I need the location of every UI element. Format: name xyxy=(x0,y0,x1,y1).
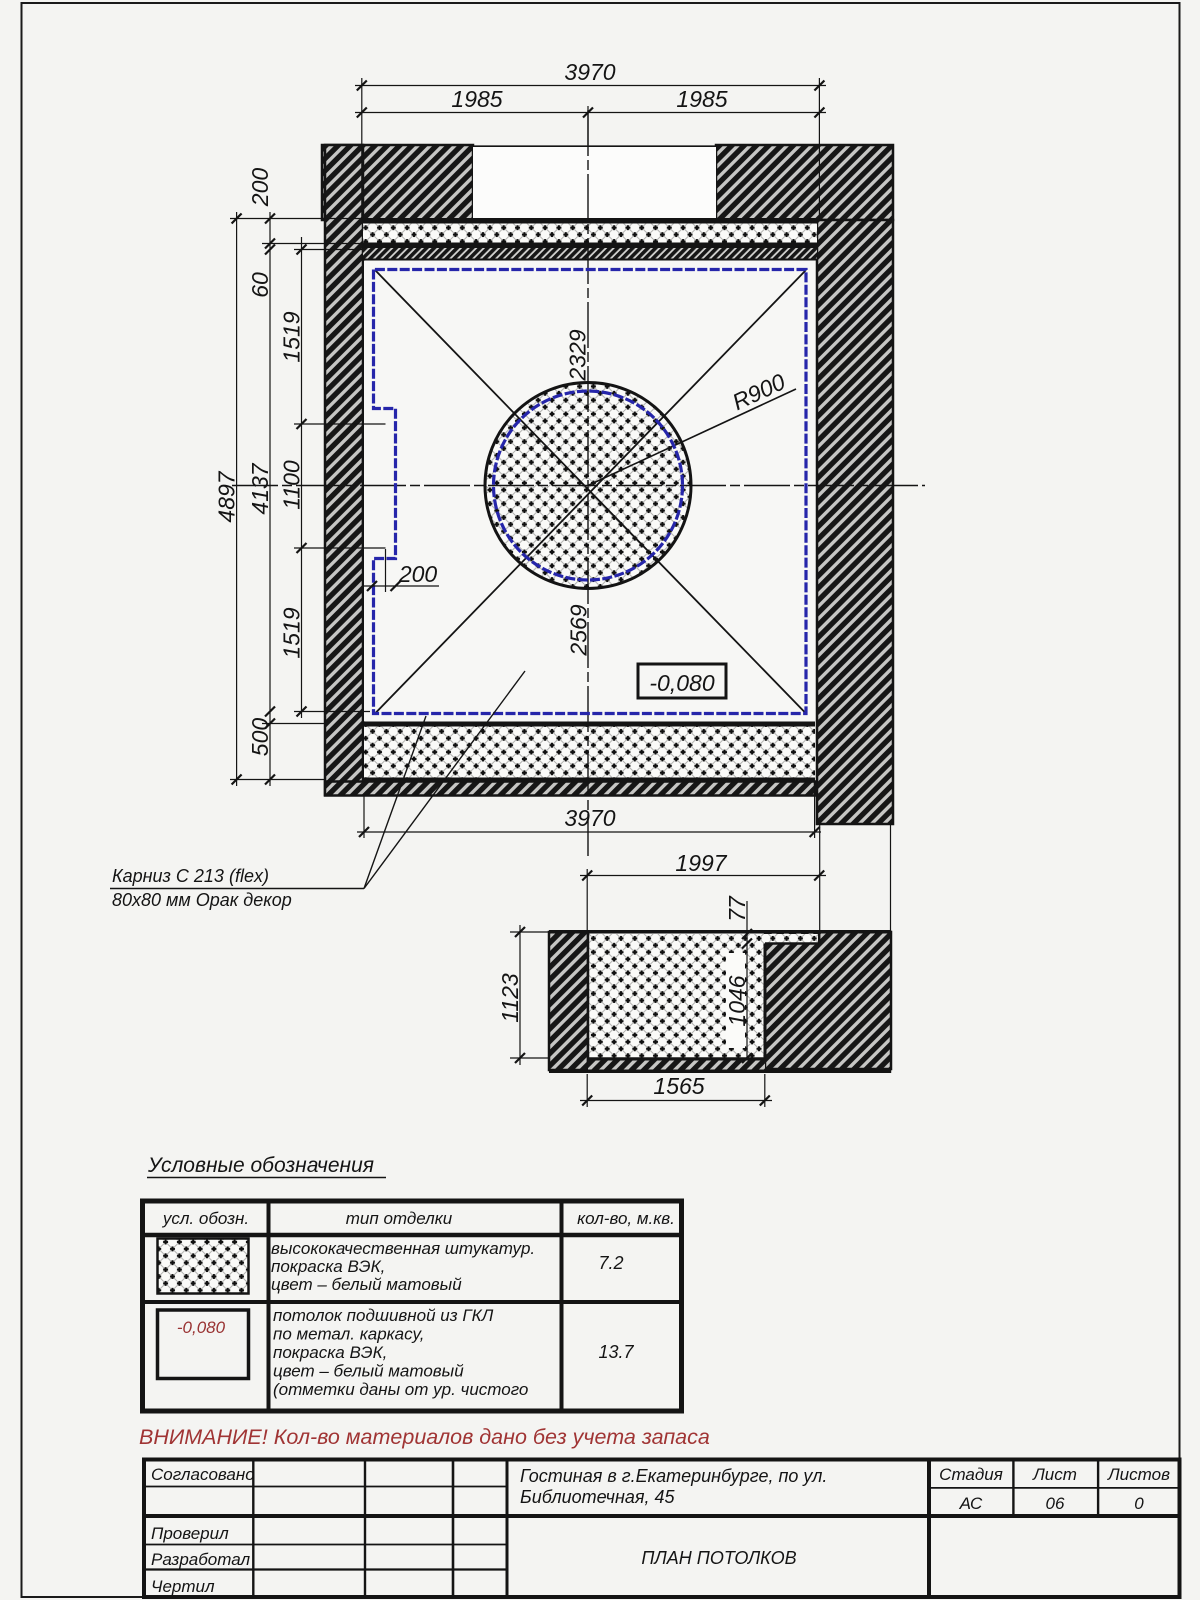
svg-text:покраска ВЭК,: покраска ВЭК, xyxy=(273,1343,387,1362)
svg-text:Гостиная в г.Екатеринбурге, по: Гостиная в г.Екатеринбурге, по ул. xyxy=(520,1466,827,1486)
svg-text:2329: 2329 xyxy=(565,329,591,381)
svg-text:по метал. каркасу,: по метал. каркасу, xyxy=(273,1325,425,1344)
svg-text:покраска ВЭК,: покраска ВЭК, xyxy=(271,1257,385,1276)
svg-text:1100: 1100 xyxy=(279,460,305,510)
svg-text:Чертил: Чертил xyxy=(151,1577,215,1596)
svg-text:АС: АС xyxy=(959,1494,983,1513)
svg-text:1565: 1565 xyxy=(653,1073,704,1099)
svg-text:1985: 1985 xyxy=(676,86,727,112)
svg-text:1519: 1519 xyxy=(279,607,305,658)
svg-text:Разработал: Разработал xyxy=(151,1550,250,1569)
svg-text:3970: 3970 xyxy=(564,59,615,85)
svg-text:ПЛАН ПОТОЛКОВ: ПЛАН ПОТОЛКОВ xyxy=(641,1548,796,1568)
svg-text:кол-во, м.кв.: кол-во, м.кв. xyxy=(577,1209,675,1228)
svg-text:потолок подшивной из ГКЛ: потолок подшивной из ГКЛ xyxy=(273,1306,494,1325)
svg-text:цвет – белый матовый: цвет – белый матовый xyxy=(273,1362,464,1381)
svg-text:4897: 4897 xyxy=(214,470,240,522)
svg-text:200: 200 xyxy=(247,168,273,208)
svg-text:2569: 2569 xyxy=(566,604,592,656)
svg-text:Условные обозначения: Условные обозначения xyxy=(147,1154,374,1177)
svg-text:Лист: Лист xyxy=(1032,1465,1077,1484)
svg-text:Стадия: Стадия xyxy=(939,1465,1003,1484)
svg-text:60: 60 xyxy=(247,272,273,298)
svg-text:4137: 4137 xyxy=(247,462,273,514)
svg-text:200: 200 xyxy=(398,561,438,587)
svg-text:06: 06 xyxy=(1046,1494,1065,1513)
svg-text:(отметки даны от ур. чистого: (отметки даны от ур. чистого xyxy=(273,1380,528,1399)
svg-text:1985: 1985 xyxy=(451,86,502,112)
svg-text:13.7: 13.7 xyxy=(598,1342,634,1362)
svg-text:Библиотечная, 45: Библиотечная, 45 xyxy=(520,1487,675,1507)
svg-text:Проверил: Проверил xyxy=(151,1524,229,1543)
svg-text:тип отделки: тип отделки xyxy=(346,1209,453,1228)
svg-text:0: 0 xyxy=(1134,1494,1144,1513)
svg-text:Согласовано: Согласовано xyxy=(151,1465,255,1484)
svg-text:77: 77 xyxy=(724,895,750,922)
svg-text:Карниз С 213 (flex): Карниз С 213 (flex) xyxy=(112,866,269,886)
svg-text:7.2: 7.2 xyxy=(598,1253,623,1273)
svg-text:усл. обозн.: усл. обозн. xyxy=(162,1209,249,1228)
svg-text:3970: 3970 xyxy=(564,805,615,831)
svg-text:высококачественная штукатур.: высококачественная штукатур. xyxy=(271,1239,535,1258)
svg-text:-0,080: -0,080 xyxy=(649,670,714,696)
svg-text:500: 500 xyxy=(247,718,273,757)
svg-text:1046: 1046 xyxy=(724,975,750,1026)
svg-text:Листов: Листов xyxy=(1107,1465,1170,1484)
svg-text:1519: 1519 xyxy=(279,311,305,362)
svg-text:ВНИМАНИЕ! Кол-во материалов да: ВНИМАНИЕ! Кол-во материалов дано без уче… xyxy=(139,1425,710,1449)
svg-text:-0,080: -0,080 xyxy=(177,1318,226,1337)
svg-text:цвет – белый матовый: цвет – белый матовый xyxy=(271,1275,462,1294)
svg-text:1997: 1997 xyxy=(675,850,727,876)
svg-text:1123: 1123 xyxy=(497,973,523,1023)
svg-text:80х80 мм Орак декор: 80х80 мм Орак декор xyxy=(112,890,292,910)
